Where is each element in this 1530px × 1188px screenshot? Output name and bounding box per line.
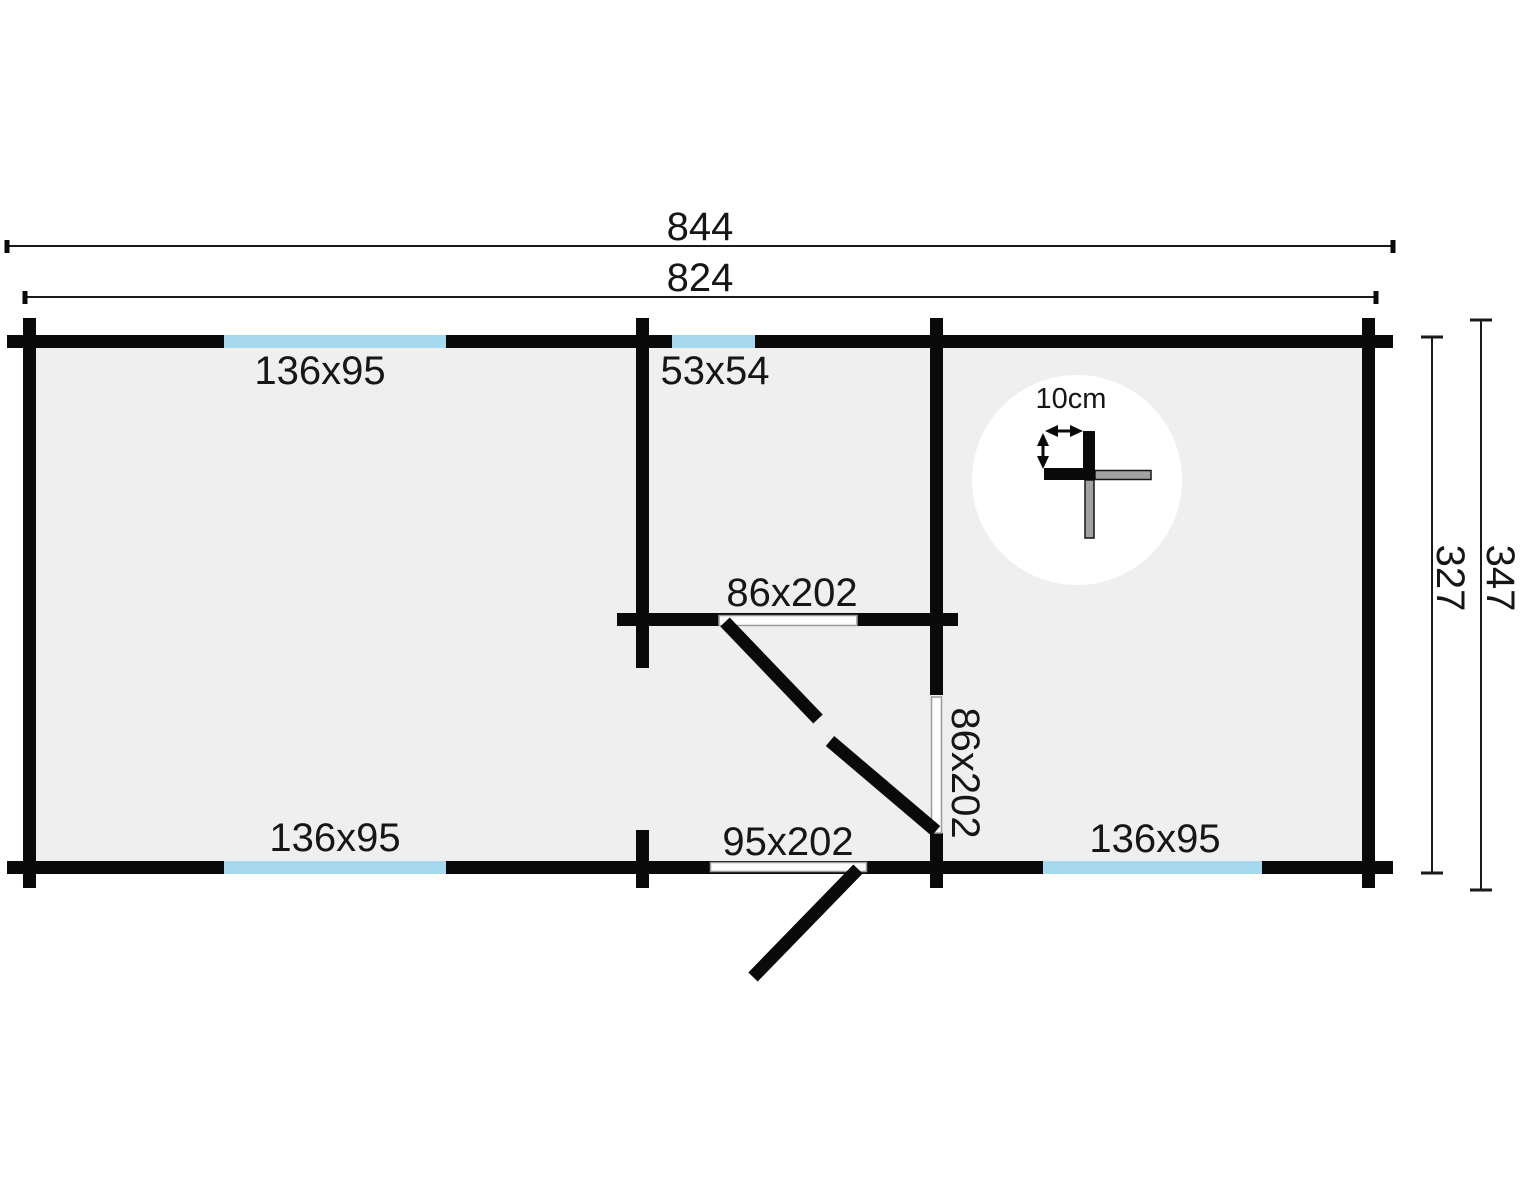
- label-interior-door-side: 86x202: [943, 707, 987, 838]
- dimension-label-outer-depth: 347: [1478, 545, 1522, 612]
- dimension-outer-depth: 347: [1470, 320, 1522, 890]
- dimension-label-outer-width: 844: [667, 205, 734, 249]
- wall-partition-left-lower: [636, 830, 649, 888]
- label-window-bottom-right: 136x95: [1089, 817, 1220, 861]
- label-interior-door-top: 86x202: [726, 571, 857, 615]
- window-top-middle: [672, 335, 755, 348]
- label-window-top-middle: 53x54: [661, 349, 770, 393]
- dimension-outer-width: 844: [5, 205, 1396, 253]
- floor: [23, 335, 1375, 874]
- wall-right: [1362, 318, 1375, 888]
- window-bottom-left: [224, 861, 446, 874]
- wall-left: [23, 318, 36, 888]
- dimension-label-inner-depth: 327: [1428, 545, 1472, 612]
- window-top-left: [224, 335, 446, 348]
- detail-log-horizontal-black: [1044, 468, 1095, 480]
- door-leaf-exterior-bottom: [753, 869, 858, 977]
- detail-label-wall-thickness: 10cm: [1036, 383, 1107, 415]
- label-window-bottom-left: 136x95: [269, 816, 400, 860]
- floor-plan: 10cm 844 824 327 347 136x95: [0, 0, 1530, 1188]
- door-opening-interior-side: [932, 697, 942, 833]
- dimension-inner-width: 824: [23, 256, 1379, 304]
- label-exterior-door-bottom: 95x202: [722, 820, 853, 864]
- door-opening-interior-top: [719, 616, 857, 626]
- label-window-top-left: 136x95: [254, 349, 385, 393]
- floor-plan-page: 10cm 844 824 327 347 136x95: [0, 0, 1530, 1188]
- detail-log-horizontal-gray: [1095, 471, 1151, 480]
- wall-partition-right-lower: [930, 833, 943, 888]
- window-bottom-right: [1043, 861, 1262, 874]
- wall-thickness-detail: 10cm: [972, 375, 1182, 585]
- dimension-label-inner-width: 824: [667, 256, 734, 300]
- detail-log-vertical-gray: [1085, 480, 1094, 538]
- dimension-inner-depth: 327: [1421, 337, 1472, 873]
- wall-partition-right-upper: [930, 318, 943, 695]
